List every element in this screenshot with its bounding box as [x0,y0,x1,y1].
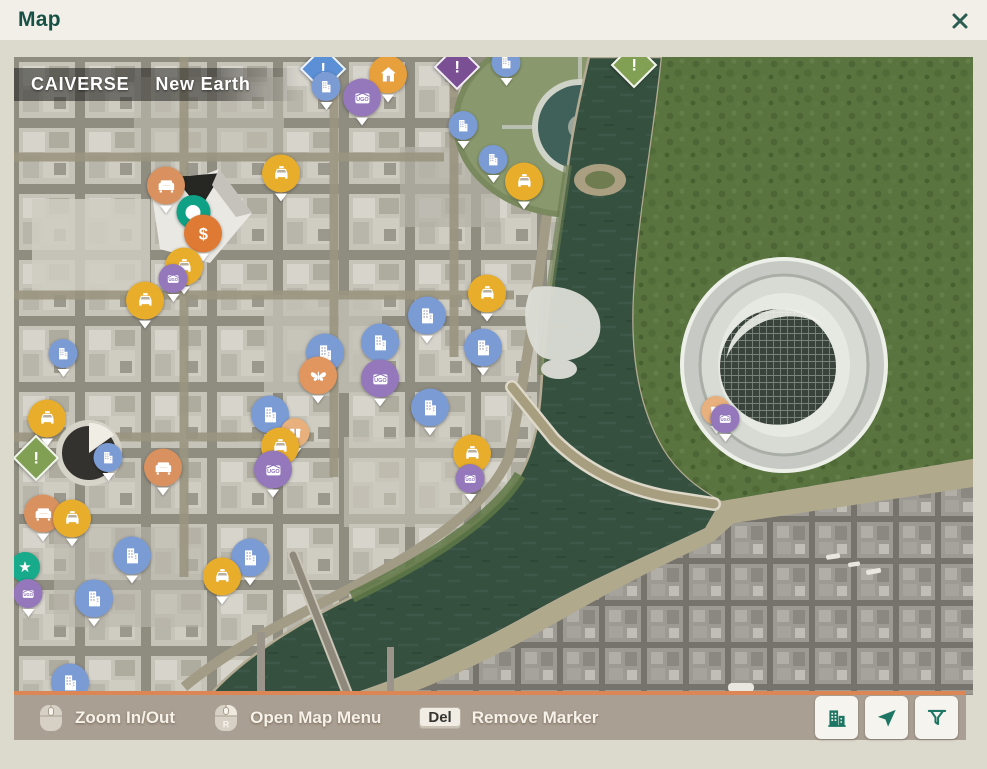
mouse-scroll-icon [38,703,64,733]
hint-map-menu-key: R [223,719,230,729]
close-icon [950,11,970,31]
marker-layer: !!!!★ [14,57,973,695]
filter-icon [924,705,950,731]
page-title: Map [0,8,61,32]
map-marker-diamond-green[interactable]: ! [20,442,53,475]
map-marker-building[interactable] [113,537,151,584]
map-marker-ugo[interactable] [343,79,381,126]
map-marker-player[interactable] [14,195,673,229]
map-toolbar: Zoom In/Out R Open Map Menu Del Remove M… [14,691,966,740]
map-marker-building[interactable] [464,329,502,376]
map-marker-ugo[interactable] [254,451,292,498]
map-tool-buttons [815,696,958,739]
map-marker-taxi[interactable] [53,500,91,547]
map-marker-taxi[interactable] [203,558,241,605]
del-key-icon: Del [419,707,460,729]
hint-remove-marker: Del Remove Marker [419,707,598,729]
map-marker-ugo[interactable] [14,579,43,617]
map-marker-taxi[interactable] [126,282,164,329]
map-marker-ugo[interactable] [361,360,399,407]
hint-remove-marker-label: Remove Marker [472,708,599,728]
navigation-arrow-icon [874,705,900,731]
universe-name: CAIVERSE [31,74,129,95]
buildings-button[interactable] [815,696,858,739]
map-marker-building[interactable] [408,297,446,344]
map-marker-sofa[interactable] [144,449,182,496]
map-marker-building[interactable] [449,111,478,149]
mouse-right-button-icon: R [213,703,239,733]
map-marker-taxi[interactable] [468,275,506,322]
locate-button[interactable] [865,696,908,739]
map-marker-building[interactable] [49,339,78,377]
map-viewport[interactable]: CAIVERSE New Earth !!!!★ [14,57,973,695]
map-marker-building[interactable] [492,57,521,86]
filter-button[interactable] [915,696,958,739]
map-marker-building[interactable] [94,443,123,481]
world-name: New Earth [155,74,250,95]
panel-body: CAIVERSE New Earth !!!!★ Zoom In/Out [0,40,987,769]
map-marker-ugo[interactable] [456,464,485,502]
map-window: Map [0,0,987,769]
map-marker-diamond-purple[interactable]: ! [441,57,474,84]
map-marker-building[interactable] [411,389,449,436]
map-marker-building[interactable] [479,145,508,183]
hint-map-menu-label: Open Map Menu [250,708,381,728]
map-marker-butterfly[interactable] [299,357,337,404]
hint-map-menu: R Open Map Menu [213,703,381,733]
close-button[interactable] [945,6,975,36]
title-bar: Map [0,0,987,40]
building-icon [824,705,850,731]
hint-zoom: Zoom In/Out [38,703,175,733]
hint-zoom-label: Zoom In/Out [75,708,175,728]
map-marker-building[interactable] [312,72,341,110]
map-marker-building[interactable] [75,580,113,627]
map-marker-diamond-green[interactable]: ! [618,57,651,82]
map-location-label: CAIVERSE New Earth [14,68,299,101]
map-marker-ugo[interactable] [711,404,740,442]
